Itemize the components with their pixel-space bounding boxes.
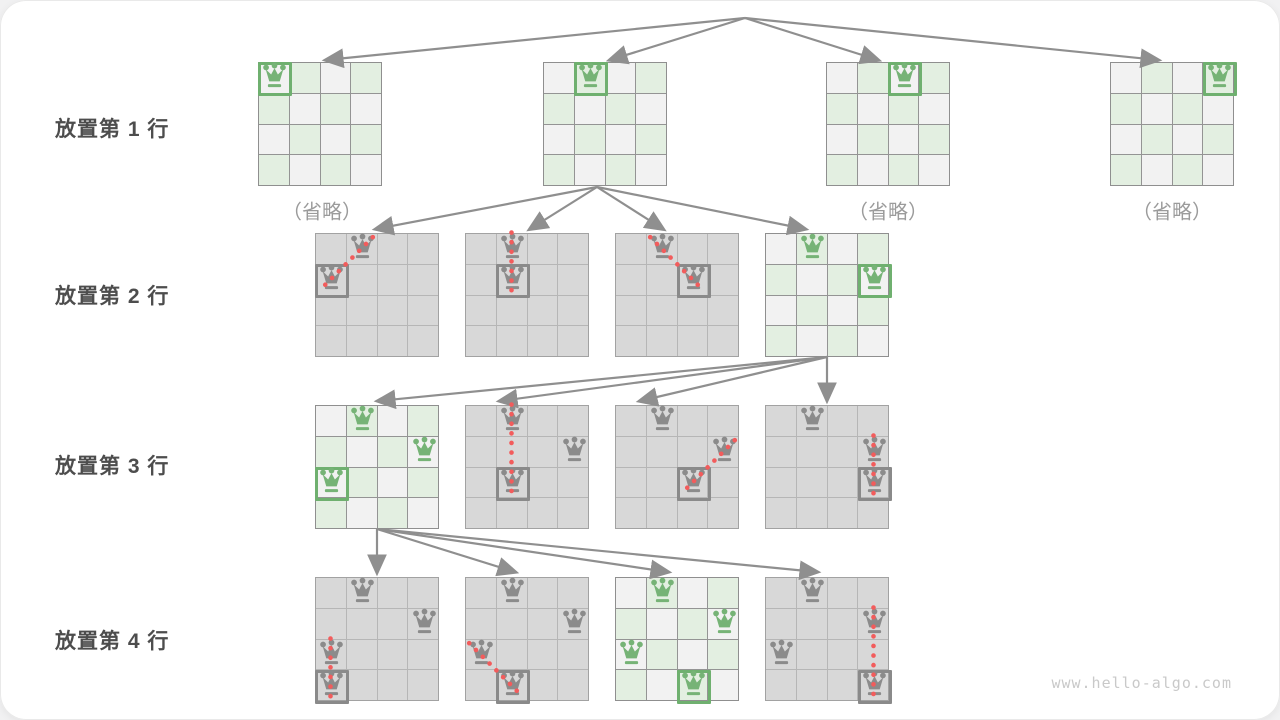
board-cell	[316, 498, 346, 528]
board-cell	[575, 155, 605, 185]
board-cell	[678, 406, 708, 436]
board-cell	[647, 296, 677, 326]
board-cell	[766, 326, 796, 356]
board-cell	[1111, 155, 1141, 185]
board-cell	[316, 326, 346, 356]
board-cell	[678, 296, 708, 326]
queen-highlight-box	[677, 467, 711, 501]
board-cell	[497, 609, 527, 639]
board-cell	[1142, 155, 1172, 185]
board-cell	[766, 234, 796, 264]
board-cell	[497, 234, 527, 264]
board-cell	[408, 609, 438, 639]
board-cell	[466, 468, 496, 498]
board-cell	[797, 498, 827, 528]
tree-arrow	[376, 187, 597, 229]
board-cell	[497, 640, 527, 670]
board-cell	[678, 640, 708, 670]
board-cell	[1111, 63, 1141, 93]
board-cell	[858, 94, 888, 124]
board-cell	[466, 326, 496, 356]
board-cell	[678, 326, 708, 356]
board-cell	[558, 670, 588, 700]
board-cell	[408, 670, 438, 700]
tree-arrow	[377, 529, 515, 572]
board-cell	[1111, 94, 1141, 124]
board-cell	[544, 125, 574, 155]
board-cell	[616, 670, 646, 700]
board-cell	[408, 265, 438, 295]
board-cell	[797, 234, 827, 264]
queen-highlight-box	[888, 62, 922, 96]
board-cell	[616, 609, 646, 639]
board-cell	[647, 578, 677, 608]
board-cell	[827, 125, 857, 155]
board-cell	[316, 609, 346, 639]
board-cell	[858, 578, 888, 608]
board-cell	[528, 468, 558, 498]
board-cell	[708, 609, 738, 639]
watermark: www.hello-algo.com	[1051, 674, 1232, 692]
board-cell	[828, 326, 858, 356]
row1-board2	[543, 62, 667, 186]
figure-canvas: 放置第 1 行放置第 2 行放置第 3 行放置第 4 行 （省略）（省略）（省略…	[0, 0, 1280, 720]
board-cell	[828, 265, 858, 295]
tree-arrow	[378, 357, 827, 401]
board-cell	[708, 640, 738, 670]
queen-highlight-box	[574, 62, 608, 96]
board-cell	[558, 468, 588, 498]
board-cell	[797, 406, 827, 436]
board-cell	[828, 640, 858, 670]
board-cell	[290, 155, 320, 185]
board-cell	[678, 578, 708, 608]
board-cell	[797, 468, 827, 498]
board-cell	[1173, 155, 1203, 185]
row2-board4	[765, 233, 889, 357]
queen-highlight-box	[858, 467, 892, 501]
board-cell	[528, 406, 558, 436]
tree-arrow	[500, 357, 827, 401]
board-cell	[766, 468, 796, 498]
board-cell	[347, 406, 377, 436]
board-cell	[497, 326, 527, 356]
queen-highlight-box	[677, 670, 711, 704]
board-cell	[828, 406, 858, 436]
tree-arrow	[597, 187, 663, 229]
board-cell	[606, 94, 636, 124]
board-cell	[497, 578, 527, 608]
row2-board3	[615, 233, 739, 357]
board-cell	[766, 265, 796, 295]
board-cell	[408, 437, 438, 467]
board-cell	[408, 578, 438, 608]
tree-arrow	[610, 18, 745, 60]
board-cell	[528, 670, 558, 700]
row1-board4	[1110, 62, 1234, 186]
board-cell	[347, 326, 377, 356]
board-cell	[827, 94, 857, 124]
board-cell	[797, 296, 827, 326]
board-cell	[708, 670, 738, 700]
board-cell	[827, 155, 857, 185]
board-cell	[1203, 125, 1233, 155]
board-cell	[466, 437, 496, 467]
board-cell	[378, 578, 408, 608]
board-cell	[544, 94, 574, 124]
board-cell	[528, 296, 558, 326]
board-cell	[708, 578, 738, 608]
board-cell	[378, 468, 408, 498]
row3-board3	[615, 405, 739, 529]
board-cell	[351, 125, 381, 155]
board-cell	[647, 326, 677, 356]
board-cell	[678, 437, 708, 467]
board-cell	[351, 63, 381, 93]
tree-arrow	[326, 18, 745, 60]
board-cell	[408, 406, 438, 436]
board-cell	[828, 468, 858, 498]
queen-highlight-box	[315, 467, 349, 501]
board-cell	[1203, 94, 1233, 124]
board-cell	[316, 578, 346, 608]
board-cell	[466, 265, 496, 295]
board-cell	[766, 437, 796, 467]
board-cell	[647, 609, 677, 639]
board-cell	[616, 265, 646, 295]
board-cell	[316, 296, 346, 326]
board-cell	[378, 498, 408, 528]
board-cell	[466, 498, 496, 528]
board-cell	[558, 406, 588, 436]
board-cell	[347, 640, 377, 670]
tree-arrow	[377, 529, 817, 572]
board-cell	[708, 468, 738, 498]
board-cell	[647, 234, 677, 264]
board-cell	[636, 63, 666, 93]
tree-arrow	[530, 187, 597, 229]
board-cell	[858, 609, 888, 639]
board-cell	[544, 155, 574, 185]
board-cell	[828, 609, 858, 639]
board-cell	[919, 94, 949, 124]
board-cell	[378, 234, 408, 264]
queen-highlight-box	[258, 62, 292, 96]
board-cell	[466, 296, 496, 326]
board-cell	[408, 296, 438, 326]
row3-board1	[315, 405, 439, 529]
board-cell	[828, 578, 858, 608]
row-label-1: 放置第 1 行	[55, 113, 169, 143]
board-cell	[797, 609, 827, 639]
board-cell	[678, 609, 708, 639]
board-cell	[408, 468, 438, 498]
board-cell	[321, 63, 351, 93]
board-cell	[889, 155, 919, 185]
board-cell	[1173, 63, 1203, 93]
board-cell	[858, 640, 888, 670]
board-cell	[408, 640, 438, 670]
board-cell	[497, 406, 527, 436]
board-cell	[378, 296, 408, 326]
board-cell	[347, 468, 377, 498]
board-cell	[606, 155, 636, 185]
board-cell	[1111, 125, 1141, 155]
board-cell	[497, 437, 527, 467]
board-cell	[558, 498, 588, 528]
board-cell	[290, 63, 320, 93]
board-cell	[616, 406, 646, 436]
board-cell	[378, 326, 408, 356]
board-cell	[797, 437, 827, 467]
board-cell	[528, 498, 558, 528]
board-cell	[378, 406, 408, 436]
board-cell	[466, 640, 496, 670]
board-cell	[347, 437, 377, 467]
board-cell	[378, 437, 408, 467]
board-cell	[678, 234, 708, 264]
board-cell	[347, 670, 377, 700]
queen-highlight-box	[858, 264, 892, 298]
row-label-2: 放置第 2 行	[55, 280, 169, 310]
board-cell	[408, 326, 438, 356]
row4-board1	[315, 577, 439, 701]
board-cell	[797, 578, 827, 608]
board-cell	[1203, 155, 1233, 185]
board-cell	[616, 498, 646, 528]
board-cell	[708, 326, 738, 356]
board-cell	[575, 125, 605, 155]
board-cell	[558, 234, 588, 264]
board-cell	[766, 640, 796, 670]
board-cell	[647, 265, 677, 295]
board-cell	[316, 234, 346, 264]
board-cell	[347, 578, 377, 608]
queen-highlight-box	[496, 467, 530, 501]
board-cell	[378, 670, 408, 700]
board-cell	[558, 437, 588, 467]
row4-board2	[465, 577, 589, 701]
board-cell	[321, 155, 351, 185]
board-cell	[544, 63, 574, 93]
board-cell	[919, 155, 949, 185]
board-cell	[616, 578, 646, 608]
board-cell	[647, 406, 677, 436]
board-cell	[636, 94, 666, 124]
board-cell	[766, 578, 796, 608]
board-cell	[528, 234, 558, 264]
board-cell	[678, 498, 708, 528]
board-cell	[708, 296, 738, 326]
board-cell	[766, 670, 796, 700]
board-cell	[858, 63, 888, 93]
board-cell	[606, 125, 636, 155]
queen-highlight-box	[1203, 62, 1237, 96]
board-cell	[466, 578, 496, 608]
board-cell	[378, 265, 408, 295]
board-cell	[858, 498, 888, 528]
row1-board3	[826, 62, 950, 186]
board-cell	[1142, 125, 1172, 155]
row1-board1	[258, 62, 382, 186]
board-cell	[828, 234, 858, 264]
omitted-label-2: （省略）	[848, 196, 928, 225]
tree-arrow	[597, 187, 805, 229]
board-cell	[528, 265, 558, 295]
board-cell	[558, 296, 588, 326]
board-cell	[466, 670, 496, 700]
board-cell	[259, 155, 289, 185]
board-cell	[858, 296, 888, 326]
board-cell	[347, 265, 377, 295]
row3-board2	[465, 405, 589, 529]
board-cell	[616, 296, 646, 326]
board-cell	[858, 234, 888, 264]
board-cell	[708, 234, 738, 264]
board-cell	[408, 498, 438, 528]
board-cell	[858, 125, 888, 155]
board-cell	[636, 155, 666, 185]
board-cell	[647, 468, 677, 498]
board-cell	[1142, 94, 1172, 124]
board-cell	[708, 437, 738, 467]
board-cell	[828, 670, 858, 700]
board-cell	[616, 437, 646, 467]
board-cell	[347, 609, 377, 639]
board-cell	[497, 296, 527, 326]
board-cell	[558, 265, 588, 295]
board-cell	[347, 234, 377, 264]
board-cell	[616, 326, 646, 356]
omitted-label-3: （省略）	[1132, 196, 1212, 225]
board-cell	[647, 670, 677, 700]
board-cell	[919, 63, 949, 93]
board-cell	[321, 94, 351, 124]
tree-arrow	[745, 18, 1158, 60]
row2-board1	[315, 233, 439, 357]
queen-highlight-box	[858, 670, 892, 704]
row3-board4	[765, 405, 889, 529]
board-cell	[858, 155, 888, 185]
board-cell	[766, 406, 796, 436]
board-cell	[828, 437, 858, 467]
board-cell	[528, 640, 558, 670]
board-cell	[708, 265, 738, 295]
board-cell	[616, 234, 646, 264]
board-cell	[528, 326, 558, 356]
board-cell	[647, 640, 677, 670]
board-cell	[528, 578, 558, 608]
board-cell	[828, 498, 858, 528]
row4-board3	[615, 577, 739, 701]
board-cell	[766, 609, 796, 639]
board-cell	[647, 498, 677, 528]
board-cell	[466, 609, 496, 639]
board-cell	[1173, 94, 1203, 124]
board-cell	[858, 406, 888, 436]
board-cell	[827, 63, 857, 93]
board-cell	[558, 609, 588, 639]
row4-board4	[765, 577, 889, 701]
board-cell	[606, 63, 636, 93]
board-cell	[889, 125, 919, 155]
tree-arrow	[640, 357, 827, 401]
board-cell	[797, 640, 827, 670]
board-cell	[408, 234, 438, 264]
board-cell	[558, 578, 588, 608]
board-cell	[259, 125, 289, 155]
row-label-4: 放置第 4 行	[55, 625, 169, 655]
board-cell	[558, 326, 588, 356]
board-cell	[378, 609, 408, 639]
board-cell	[636, 125, 666, 155]
board-cell	[766, 498, 796, 528]
board-cell	[797, 326, 827, 356]
row2-board2	[465, 233, 589, 357]
tree-arrow	[745, 18, 878, 60]
board-cell	[316, 640, 346, 670]
board-cell	[647, 437, 677, 467]
queen-highlight-box	[315, 264, 349, 298]
board-cell	[528, 609, 558, 639]
board-cell	[1142, 63, 1172, 93]
queen-highlight-box	[315, 670, 349, 704]
board-cell	[259, 94, 289, 124]
board-cell	[616, 468, 646, 498]
board-cell	[497, 498, 527, 528]
board-cell	[708, 406, 738, 436]
board-cell	[797, 670, 827, 700]
board-cell	[575, 94, 605, 124]
board-cell	[290, 94, 320, 124]
board-cell	[528, 437, 558, 467]
board-cell	[378, 640, 408, 670]
board-cell	[858, 437, 888, 467]
board-cell	[466, 234, 496, 264]
queen-highlight-box	[496, 670, 530, 704]
board-cell	[347, 498, 377, 528]
omitted-label-1: （省略）	[282, 196, 362, 225]
board-cell	[919, 125, 949, 155]
board-cell	[797, 265, 827, 295]
board-cell	[290, 125, 320, 155]
board-cell	[616, 640, 646, 670]
board-cell	[351, 94, 381, 124]
board-cell	[1173, 125, 1203, 155]
board-cell	[347, 296, 377, 326]
board-cell	[766, 296, 796, 326]
queen-highlight-box	[677, 264, 711, 298]
row-label-3: 放置第 3 行	[55, 450, 169, 480]
tree-arrow	[377, 529, 668, 572]
board-cell	[889, 94, 919, 124]
board-cell	[858, 326, 888, 356]
board-cell	[316, 406, 346, 436]
board-cell	[466, 406, 496, 436]
board-cell	[828, 296, 858, 326]
board-cell	[316, 437, 346, 467]
board-cell	[708, 498, 738, 528]
board-cell	[321, 125, 351, 155]
queen-highlight-box	[496, 264, 530, 298]
board-cell	[351, 155, 381, 185]
board-cell	[558, 640, 588, 670]
